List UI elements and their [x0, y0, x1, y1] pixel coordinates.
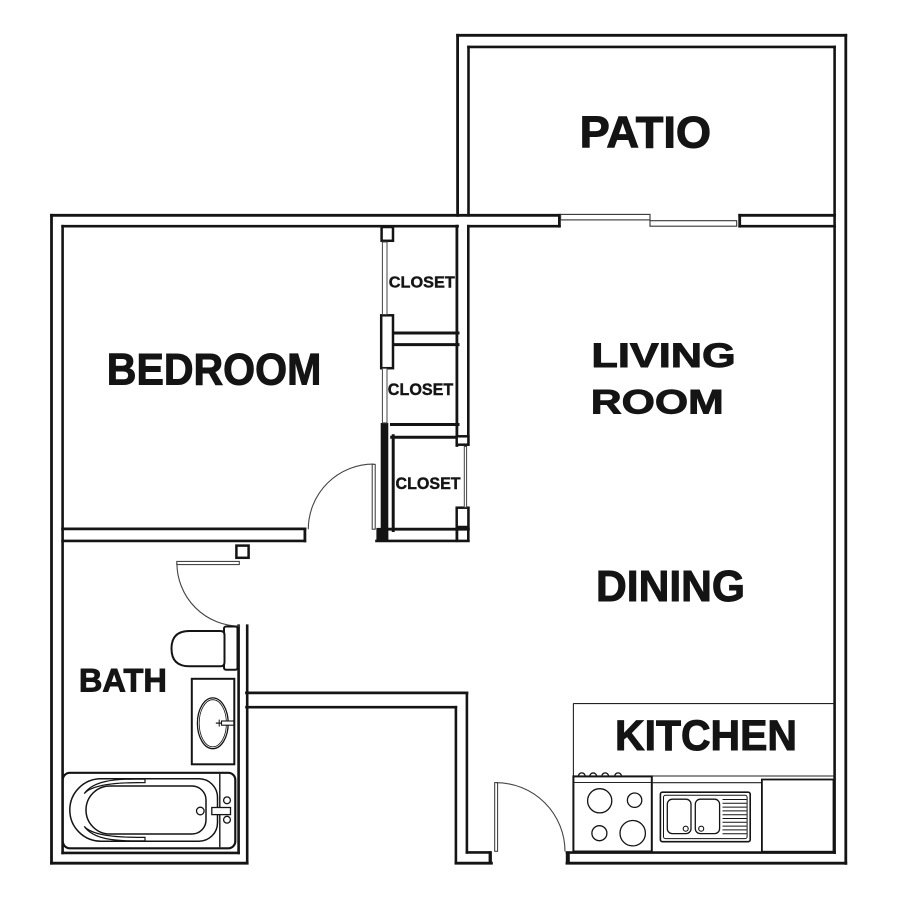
svg-text:CLOSET: CLOSET [396, 475, 461, 493]
svg-text:LIVING: LIVING [591, 337, 735, 375]
svg-text:KITCHEN: KITCHEN [615, 712, 797, 760]
svg-text:PATIO: PATIO [580, 109, 712, 158]
svg-text:BEDROOM: BEDROOM [107, 345, 321, 394]
svg-text:CLOSET: CLOSET [388, 381, 454, 399]
svg-text:BATH: BATH [79, 661, 167, 698]
svg-text:DINING: DINING [596, 563, 745, 611]
svg-text:CLOSET: CLOSET [389, 274, 455, 291]
svg-text:ROOM: ROOM [591, 384, 724, 422]
